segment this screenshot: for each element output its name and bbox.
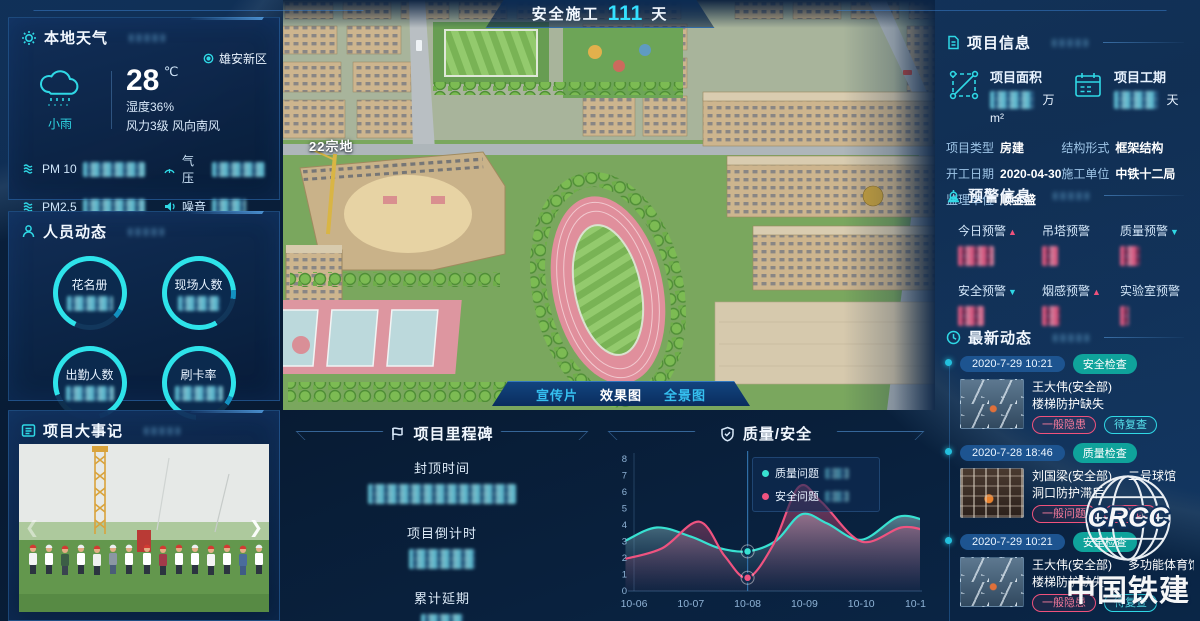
stat-duration: 项目工期 天	[1070, 67, 1184, 127]
latest-updates-title: 最新动态	[968, 327, 1032, 348]
shield-check-icon	[720, 426, 735, 442]
events-title: 项目大事记	[43, 420, 123, 441]
rain-cloud-icon	[37, 68, 83, 108]
crcc-logo: CRCC 中国铁建	[1058, 466, 1198, 618]
warnings-panel: 预警信息 今日预警▲ 吊塔预警 质量预警▼ 安全预警▼ 烟感预警▲	[936, 177, 1194, 317]
air-metrics: PM 10 气压 PM2.5 噪音	[23, 152, 265, 215]
field-structure: 结构形式框架结构	[1061, 139, 1184, 156]
crcc-acronym: CRCC	[1087, 501, 1169, 532]
svg-text:4: 4	[622, 520, 627, 531]
tooltip-quality-row: 质量问题	[762, 465, 870, 481]
chart-tooltip: 质量问题 安全问题	[752, 457, 880, 512]
stat-area: 项目面积 万m²	[946, 67, 1060, 127]
up-arrow-icon: ▲	[1092, 287, 1101, 297]
view-button-panorama[interactable]: 全景图	[664, 385, 706, 404]
header-wing	[829, 431, 925, 440]
ring-card-rate[interactable]: 刷卡率	[162, 346, 236, 420]
inspection-photo[interactable]	[960, 379, 1024, 429]
svg-text:10-10: 10-10	[848, 598, 875, 610]
milestone-panel: 项目里程碑 封顶时间 项目倒计时 累计延期	[288, 413, 596, 621]
warning-grid: 今日预警▲ 吊塔预警 质量预警▼ 安全预警▼ 烟感预警▲ 实验室预警	[958, 222, 1194, 326]
view-button-render[interactable]: 效果图	[600, 385, 642, 404]
svg-text:1: 1	[622, 570, 627, 581]
entry-category: 质量检查	[1073, 443, 1137, 463]
ring-roster[interactable]: 花名册	[53, 256, 127, 330]
weather-title: 本地天气	[44, 27, 108, 48]
calendar-icon	[1070, 67, 1106, 103]
wind: 风力3级 风向南风	[126, 117, 220, 136]
quality-safety-panel: 质量/安全 01234567810-0610-0710-0810-0910-10…	[600, 413, 932, 621]
person-icon	[21, 224, 36, 239]
flag-icon	[390, 426, 405, 441]
weather-panel: 本地天气 雄安新区 小雨 28	[8, 17, 280, 200]
topping-time-value-blurred	[368, 484, 516, 504]
group-of-people	[29, 545, 263, 575]
sun-gear-icon	[21, 30, 37, 46]
header-smudge	[129, 34, 165, 42]
onsite-value-blurred	[178, 296, 220, 311]
quality-count-blurred	[825, 468, 849, 479]
project-info-title: 项目信息	[967, 32, 1031, 53]
quality-safety-title: 质量/安全	[743, 423, 812, 444]
cardrate-value-blurred	[175, 386, 223, 401]
svg-text:0: 0	[622, 586, 627, 597]
svg-text:10-06: 10-06	[621, 598, 648, 610]
duration-label: 项目工期	[1114, 67, 1178, 86]
metric-pressure: 气压	[163, 152, 265, 186]
land-parcel-label: 22宗地	[309, 136, 353, 155]
down-arrow-icon: ▼	[1170, 227, 1179, 237]
scene-view-switcher: 宣传片 效果图 全景图	[492, 381, 750, 406]
attendance-value-blurred	[66, 386, 114, 401]
safety-count-blurred	[825, 491, 849, 502]
location-badge[interactable]: 雄安新区	[203, 50, 267, 67]
dashboard: 22宗地 宣传片 效果图 全景图 安全施工 111 天 本地天气	[0, 0, 1200, 621]
clock-icon	[946, 330, 961, 345]
countdown-label: 项目倒计时	[407, 523, 477, 542]
location-name: 雄安新区	[219, 50, 267, 67]
svg-text:8: 8	[622, 454, 627, 465]
inspector-name: 王大伟(安全部)	[1032, 379, 1112, 396]
header-line	[1104, 337, 1184, 338]
warning-crane[interactable]: 吊塔预警	[1042, 222, 1120, 266]
header-wing	[493, 431, 589, 440]
svg-text:10-07: 10-07	[677, 598, 704, 610]
news-icon	[21, 423, 36, 438]
up-arrow-icon: ▲	[1008, 227, 1017, 237]
crcc-name: 中国铁建	[1058, 566, 1198, 610]
personnel-panel: 人员动态 花名册 现场人数 出勤人数 刷卡率	[8, 211, 280, 401]
safety-dot	[762, 493, 769, 500]
header-smudge	[1052, 39, 1088, 47]
timeline-line	[949, 363, 950, 621]
pressure-value-blurred	[212, 162, 265, 177]
issue-text: 楼梯防护缺失	[1032, 396, 1157, 413]
today-warning-value-blurred	[958, 246, 994, 266]
header-smudge	[1053, 192, 1089, 200]
header-smudge	[128, 228, 164, 236]
update-entry[interactable]: 2020-7-29 10:21 安全检查 王大伟(安全部) 楼梯防护缺失 一般隐…	[960, 354, 1194, 434]
divider	[111, 71, 112, 129]
warning-quality[interactable]: 质量预警▼	[1120, 222, 1194, 266]
pressure-icon	[163, 164, 176, 175]
delay-value-blurred	[421, 614, 463, 621]
roster-value-blurred	[67, 296, 113, 311]
carousel-next-arrow[interactable]: ❯	[249, 518, 263, 538]
warnings-title: 预警信息	[968, 185, 1032, 206]
tooltip-safety-row: 安全问题	[762, 488, 870, 504]
field-type: 项目类型房建	[946, 139, 1061, 156]
inspection-photo[interactable]	[960, 557, 1024, 607]
header-wing	[296, 431, 392, 440]
milestone-title: 项目里程碑	[413, 423, 493, 444]
area-icon	[946, 67, 982, 103]
svg-text:3: 3	[622, 537, 627, 548]
pm10-value-blurred	[83, 162, 145, 177]
haze-icon	[23, 202, 36, 212]
inspection-photo[interactable]	[960, 468, 1024, 518]
events-panel: 项目大事记	[8, 410, 280, 621]
personnel-rings: 花名册 现场人数 出勤人数 刷卡率	[9, 248, 279, 420]
svg-text:7: 7	[622, 471, 627, 482]
carousel-prev-arrow[interactable]: ❮	[25, 518, 39, 538]
area-label: 项目面积	[990, 67, 1060, 86]
project-stats: 项目面积 万m² 项目工期 天	[946, 67, 1184, 127]
event-photo[interactable]: ❮ ❯	[19, 444, 269, 612]
svg-text:6: 6	[622, 487, 627, 498]
entry-date: 2020-7-29 10:21	[960, 534, 1065, 550]
temperature: 28 ℃	[126, 64, 220, 98]
project-info-panel: 项目信息 项目面积 万m²	[936, 24, 1194, 174]
severity-tag: 一般隐患	[1032, 416, 1096, 434]
entry-category: 安全检查	[1073, 354, 1137, 374]
humidity: 湿度36%	[126, 98, 220, 117]
svg-text:2: 2	[622, 553, 627, 564]
entry-date: 2020-7-28 18:46	[960, 445, 1065, 461]
header-smudge	[1053, 334, 1089, 342]
ring-onsite[interactable]: 现场人数	[162, 256, 236, 330]
duration-unit: 天	[1166, 93, 1178, 107]
site-3d-render	[283, 0, 935, 410]
milestone-items: 封顶时间 项目倒计时 累计延期	[288, 458, 596, 621]
header-wing	[608, 431, 704, 440]
svg-text:5: 5	[622, 504, 627, 515]
quality-warning-value-blurred	[1120, 246, 1140, 266]
countdown-value-blurred	[409, 549, 475, 569]
view-button-promo[interactable]: 宣传片	[536, 385, 578, 404]
document-icon	[946, 35, 960, 50]
svg-text:10-08: 10-08	[734, 598, 761, 610]
down-arrow-icon: ▼	[1008, 287, 1017, 297]
quality-dot	[762, 470, 769, 477]
site-model-view[interactable]: 22宗地 宣传片 效果图 全景图	[283, 0, 935, 410]
duration-value-blurred	[1114, 91, 1158, 109]
svg-text:10-11: 10-11	[905, 598, 926, 610]
header-line	[1104, 195, 1184, 196]
haze-icon	[23, 164, 36, 174]
personnel-title: 人员动态	[43, 221, 107, 242]
topping-out-ceremony-photo	[19, 444, 269, 612]
weather-current: 小雨 28 ℃ 湿度36% 风力3级 风向南风	[23, 64, 265, 136]
topping-time-label: 封顶时间	[414, 458, 470, 477]
delay-label: 累计延期	[414, 588, 470, 607]
metric-pm10: PM 10	[23, 152, 163, 186]
header-smudge	[144, 427, 180, 435]
location-icon	[203, 53, 214, 64]
status-tag: 待复查	[1104, 416, 1157, 434]
entry-date: 2020-7-29 10:21	[960, 356, 1065, 372]
crcc-globe-icon: CRCC	[1076, 466, 1180, 570]
ring-attendance[interactable]: 出勤人数	[53, 346, 127, 420]
area-value-blurred	[990, 91, 1034, 109]
alarm-icon	[946, 188, 961, 203]
weather-condition: 小雨	[23, 115, 97, 132]
header-line	[1103, 42, 1184, 43]
warning-today[interactable]: 今日预警▲	[958, 222, 1042, 266]
crane-warning-value-blurred	[1042, 246, 1058, 266]
svg-text:10-09: 10-09	[791, 598, 818, 610]
